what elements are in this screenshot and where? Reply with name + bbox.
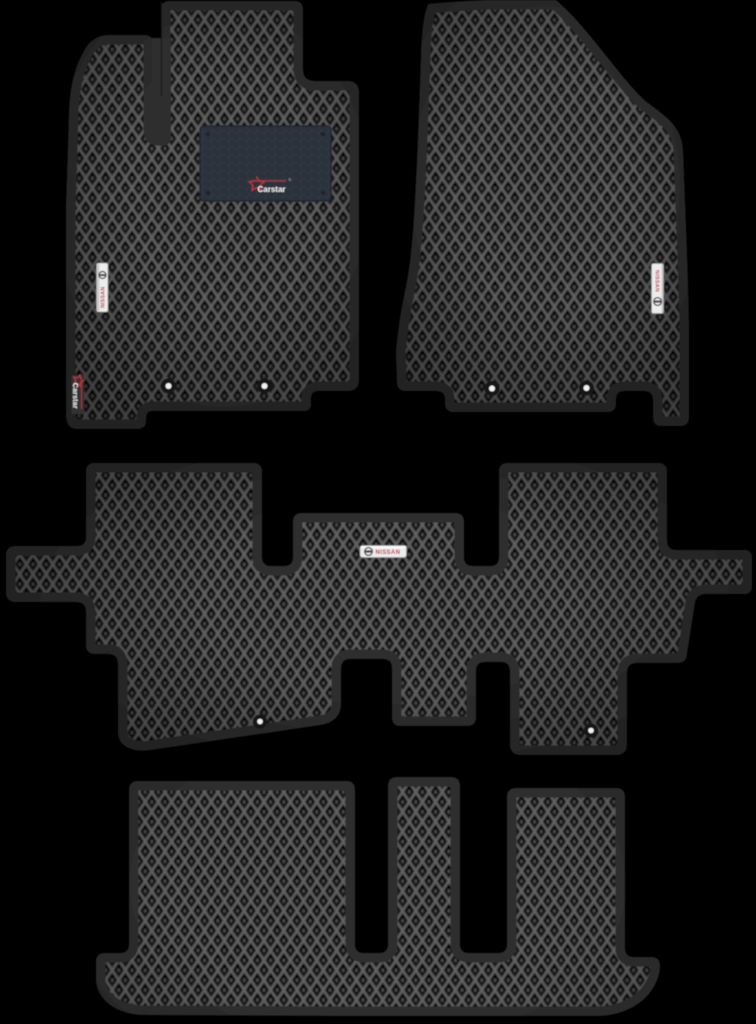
svg-text:NISSAN: NISSAN [654,270,660,292]
svg-text:NISSAN: NISSAN [101,287,107,308]
svg-text:Carstar: Carstar [258,185,286,194]
svg-text:NISSAN: NISSAN [376,550,401,556]
svg-text:Carstar: Carstar [71,383,80,409]
svg-text:®: ® [289,178,292,182]
